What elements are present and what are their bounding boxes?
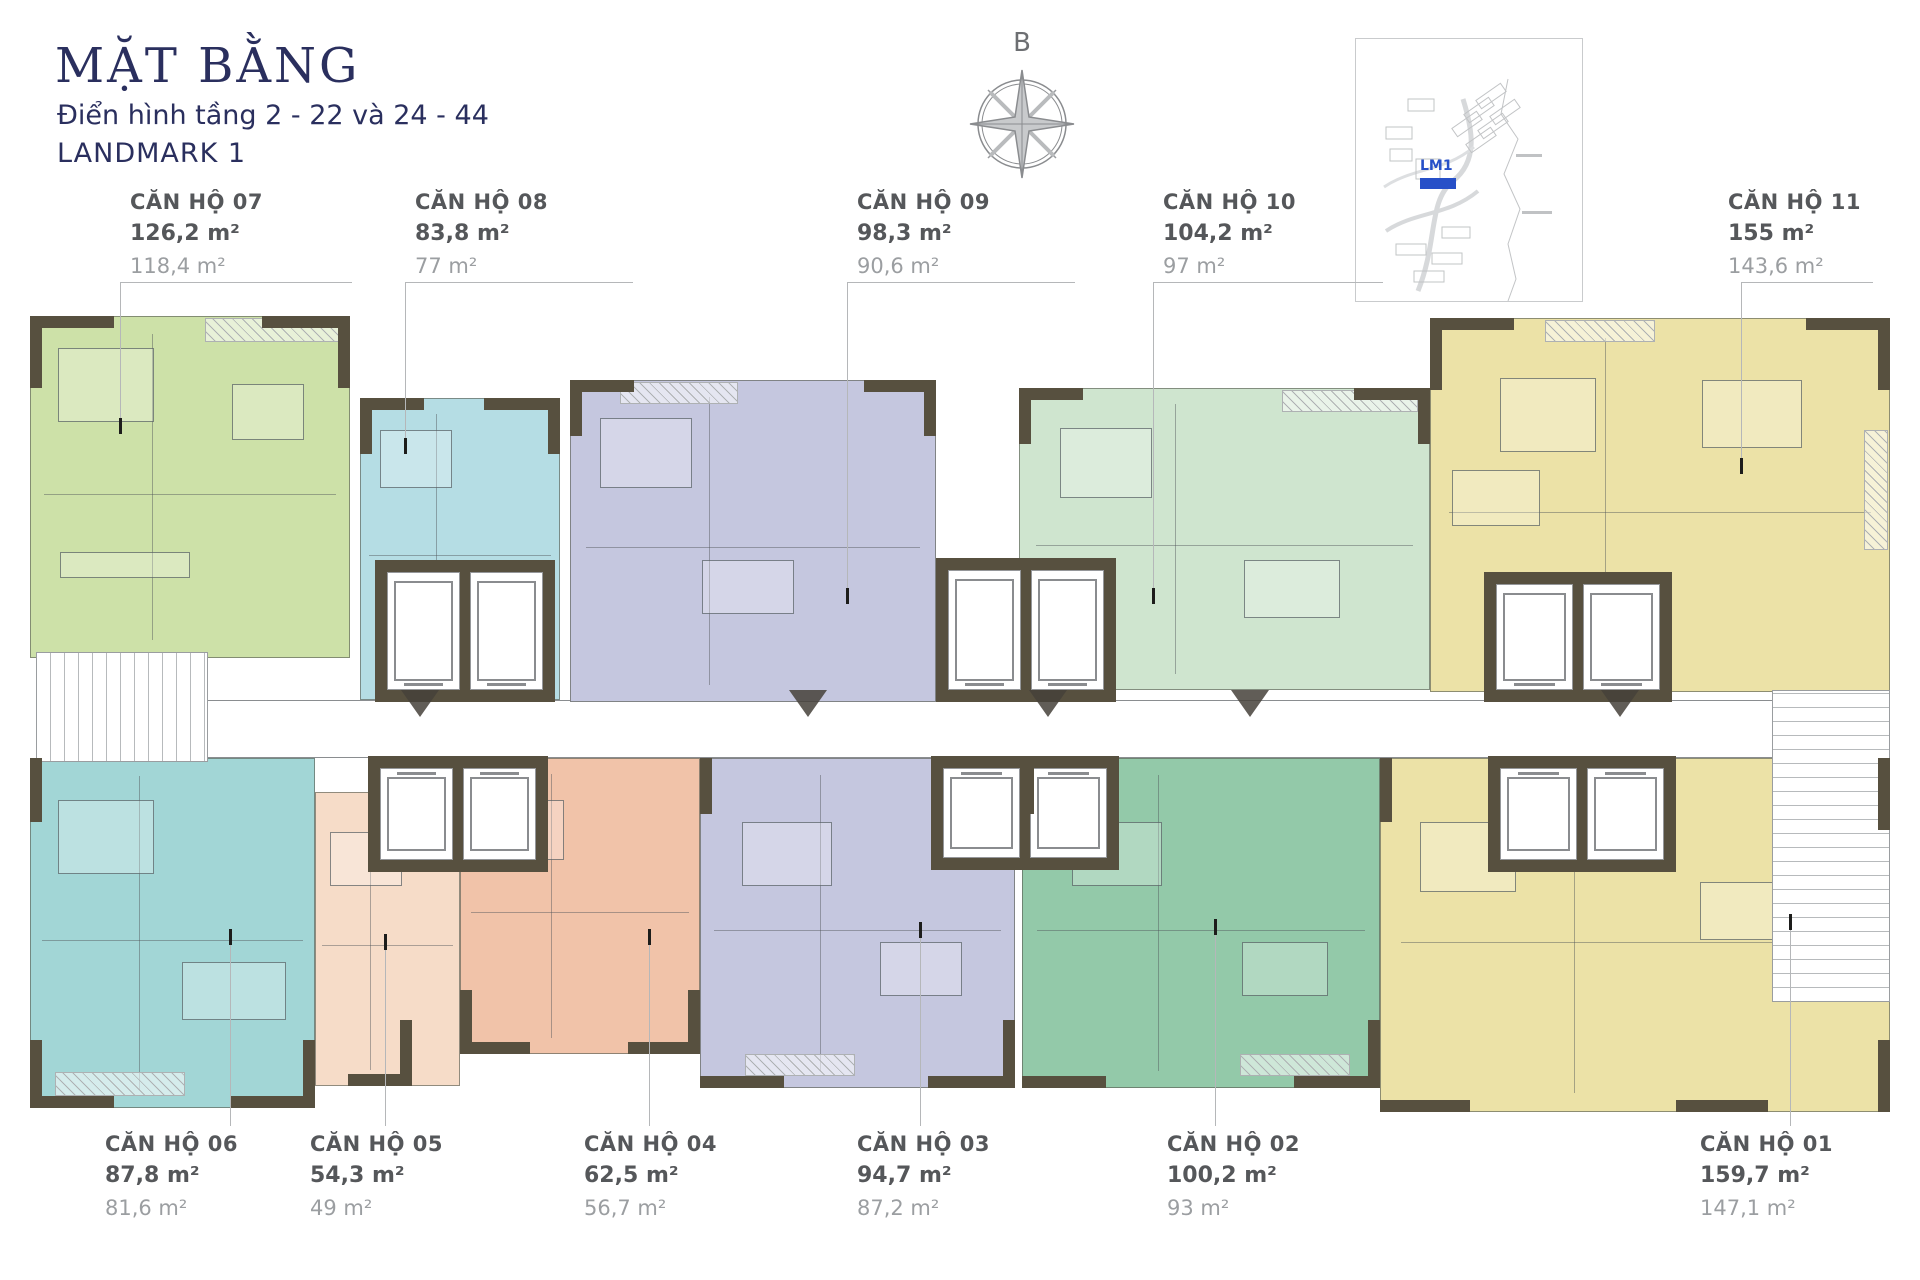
unit-area-1: 87,8 m² [105, 1160, 238, 1192]
elevator-shaft [1587, 768, 1664, 860]
furniture-outline [58, 348, 154, 422]
unit-area-1: 159,7 m² [1700, 1160, 1833, 1192]
leader-pin-marker [229, 929, 232, 945]
leader-pin-marker [1740, 458, 1743, 474]
wall-segment [1003, 1020, 1015, 1088]
elevator-car [1038, 579, 1097, 681]
wall-segment [570, 380, 634, 392]
leader-pin-marker [404, 438, 407, 454]
elevator-shaft [1583, 584, 1660, 690]
elevator-shaft [470, 572, 543, 690]
wall-segment [1418, 388, 1430, 444]
stairwell [36, 652, 208, 762]
label-leader-line [847, 282, 1075, 283]
furniture-outline [182, 962, 286, 1020]
elevator-car [1507, 777, 1570, 851]
wall-segment [1430, 318, 1514, 330]
label-leader-line [385, 950, 386, 1126]
elevator-shaft [1031, 570, 1104, 690]
label-leader-line [120, 282, 352, 283]
wall-segment [460, 1042, 530, 1054]
unit-area-1: 100,2 m² [1167, 1160, 1300, 1192]
furniture-outline [1060, 428, 1152, 498]
elevator-car [477, 581, 536, 681]
wall-segment [1380, 758, 1392, 822]
elevator-shaft [943, 768, 1020, 858]
unit-name: CĂN HỘ 11 [1728, 186, 1861, 218]
label-leader-line [405, 282, 406, 438]
unit-name: CĂN HỘ 06 [105, 1128, 238, 1160]
furniture-outline [702, 560, 794, 614]
unit-label-03: CĂN HỘ 03 94,7 m² 87,2 m² [857, 1128, 990, 1224]
unit-area-2: 49 m² [310, 1192, 443, 1224]
elevator-car [950, 777, 1013, 849]
elevator-shaft [387, 572, 460, 690]
unit-area-2: 90,6 m² [857, 250, 990, 282]
door-swing-icon [401, 690, 439, 717]
unit-label-11: CĂN HỘ 11 155 m² 143,6 m² [1728, 186, 1861, 282]
elevator-shaft [1030, 768, 1107, 858]
label-leader-line [920, 938, 921, 1126]
wall-segment [360, 398, 424, 410]
furniture-outline [742, 822, 832, 886]
furniture-outline [232, 384, 304, 440]
unit-label-06: CĂN HỘ 06 87,8 m² 81,6 m² [105, 1128, 238, 1224]
wall-segment [1380, 1100, 1470, 1112]
unit-name: CĂN HỘ 07 [130, 186, 263, 218]
floor-plan-page: MẶT BẰNG Điển hình tầng 2 - 22 và 24 - 4… [0, 0, 1920, 1280]
leader-pin-marker [919, 922, 922, 938]
unit-area-2: 56,7 m² [584, 1192, 717, 1224]
leader-pin-marker [846, 588, 849, 604]
furniture-outline [1244, 560, 1340, 618]
leader-pin-marker [384, 934, 387, 950]
elevator-car [1594, 777, 1657, 851]
balcony-hatch [745, 1054, 855, 1076]
leader-pin-marker [1214, 919, 1217, 935]
balcony-hatch [1545, 320, 1655, 342]
elevator-shaft [380, 768, 453, 860]
unit-name: CĂN HỘ 05 [310, 1128, 443, 1160]
unit-area-2: 93 m² [1167, 1192, 1300, 1224]
label-leader-line [405, 282, 633, 283]
wall-segment [548, 398, 560, 454]
elevator-car [1037, 777, 1100, 849]
unit-area-1: 155 m² [1728, 218, 1861, 250]
unit-area-2: 81,6 m² [105, 1192, 238, 1224]
unit-area-2: 87,2 m² [857, 1192, 990, 1224]
label-leader-line [1741, 282, 1873, 283]
leader-pin-marker [648, 929, 651, 945]
leader-pin-marker [1152, 588, 1155, 604]
unit-label-04: CĂN HỘ 04 62,5 m² 56,7 m² [584, 1128, 717, 1224]
elevator-car [387, 777, 446, 851]
elevator-shaft [948, 570, 1021, 690]
unit-area-2: 118,4 m² [130, 250, 263, 282]
wall-segment [928, 1076, 1015, 1088]
furniture-outline [1500, 378, 1596, 452]
furniture-outline [1242, 942, 1328, 996]
balcony-hatch [620, 382, 738, 404]
label-leader-line [1215, 935, 1216, 1126]
label-leader-line [847, 282, 848, 588]
furniture-outline [58, 800, 154, 874]
wall-segment [700, 758, 712, 814]
label-leader-line [120, 282, 121, 418]
leader-pin-marker [119, 418, 122, 434]
furniture-outline [380, 430, 452, 488]
wall-segment [1878, 758, 1890, 830]
unit-area-2: 97 m² [1163, 250, 1296, 282]
door-swing-icon [1029, 690, 1067, 717]
door-swing-icon [789, 690, 827, 717]
unit-label-05: CĂN HỘ 05 54,3 m² 49 m² [310, 1128, 443, 1224]
furniture-outline [60, 552, 190, 578]
wall-segment [262, 316, 350, 328]
unit-label-02: CĂN HỘ 02 100,2 m² 93 m² [1167, 1128, 1300, 1224]
label-leader-line [1153, 282, 1383, 283]
elevator-shaft [463, 768, 536, 860]
elevator-car [1590, 593, 1653, 681]
unit-name: CĂN HỘ 03 [857, 1128, 990, 1160]
unit-area-1: 98,3 m² [857, 218, 990, 250]
balcony-hatch [1864, 430, 1888, 550]
unit-name: CĂN HỘ 09 [857, 186, 990, 218]
furniture-outline [1702, 380, 1802, 448]
wall-segment [1019, 388, 1083, 400]
label-leader-line [649, 945, 650, 1126]
unit-area-1: 62,5 m² [584, 1160, 717, 1192]
wall-segment [1368, 1020, 1380, 1088]
wall-segment [1878, 1040, 1890, 1112]
elevator-core [936, 558, 1116, 702]
unit-name: CĂN HỘ 01 [1700, 1128, 1833, 1160]
elevator-car [394, 581, 453, 681]
wall-segment [1022, 758, 1034, 814]
label-leader-line [1790, 930, 1791, 1126]
balcony-hatch [55, 1072, 185, 1096]
wall-segment [30, 1096, 114, 1108]
unit-area-2: 147,1 m² [1700, 1192, 1833, 1224]
unit-label-01: CĂN HỘ 01 159,7 m² 147,1 m² [1700, 1128, 1833, 1224]
furniture-outline [1452, 470, 1540, 526]
unit-area-1: 104,2 m² [1163, 218, 1296, 250]
leader-pin-marker [1789, 914, 1792, 930]
label-leader-line [230, 945, 231, 1126]
unit-label-08: CĂN HỘ 08 83,8 m² 77 m² [415, 186, 548, 282]
unit-label-10: CĂN HỘ 10 104,2 m² 97 m² [1163, 186, 1296, 282]
elevator-core [1488, 756, 1676, 872]
unit-area-1: 94,7 m² [857, 1160, 990, 1192]
wall-segment [1878, 318, 1890, 390]
label-leader-line [1153, 282, 1154, 588]
unit-label-09: CĂN HỘ 09 98,3 m² 90,6 m² [857, 186, 990, 282]
wall-segment [1022, 1076, 1106, 1088]
unit-name: CĂN HỘ 02 [1167, 1128, 1300, 1160]
unit-label-07: CĂN HỘ 07 126,2 m² 118,4 m² [130, 186, 263, 282]
unit-area-1: 83,8 m² [415, 218, 548, 250]
unit-name: CĂN HỘ 04 [584, 1128, 717, 1160]
unit-area-1: 54,3 m² [310, 1160, 443, 1192]
label-leader-line [1741, 282, 1742, 458]
door-swing-icon [1601, 690, 1639, 717]
wall-segment [400, 1020, 412, 1086]
unit-area-1: 126,2 m² [130, 218, 263, 250]
elevator-car [955, 579, 1014, 681]
door-swing-icon [1231, 690, 1269, 717]
unit-name: CĂN HỘ 08 [415, 186, 548, 218]
elevator-car [470, 777, 529, 851]
elevator-core [368, 756, 548, 872]
wall-segment [303, 1040, 315, 1108]
furniture-outline [880, 942, 962, 996]
wall-segment [30, 316, 114, 328]
elevator-shaft [1496, 584, 1573, 690]
wall-segment [688, 990, 700, 1054]
wall-segment [924, 380, 936, 436]
wall-segment [338, 316, 350, 388]
unit-name: CĂN HỘ 10 [1163, 186, 1296, 218]
elevator-car [1503, 593, 1566, 681]
unit-area-2: 143,6 m² [1728, 250, 1861, 282]
elevator-core [375, 560, 555, 702]
balcony-hatch [1240, 1054, 1350, 1076]
wall-segment [30, 758, 42, 822]
unit-area-2: 77 m² [415, 250, 548, 282]
elevator-core [1484, 572, 1672, 702]
wall-segment [1676, 1100, 1768, 1112]
elevator-shaft [1500, 768, 1577, 860]
furniture-outline [600, 418, 692, 488]
wall-segment [700, 1076, 784, 1088]
